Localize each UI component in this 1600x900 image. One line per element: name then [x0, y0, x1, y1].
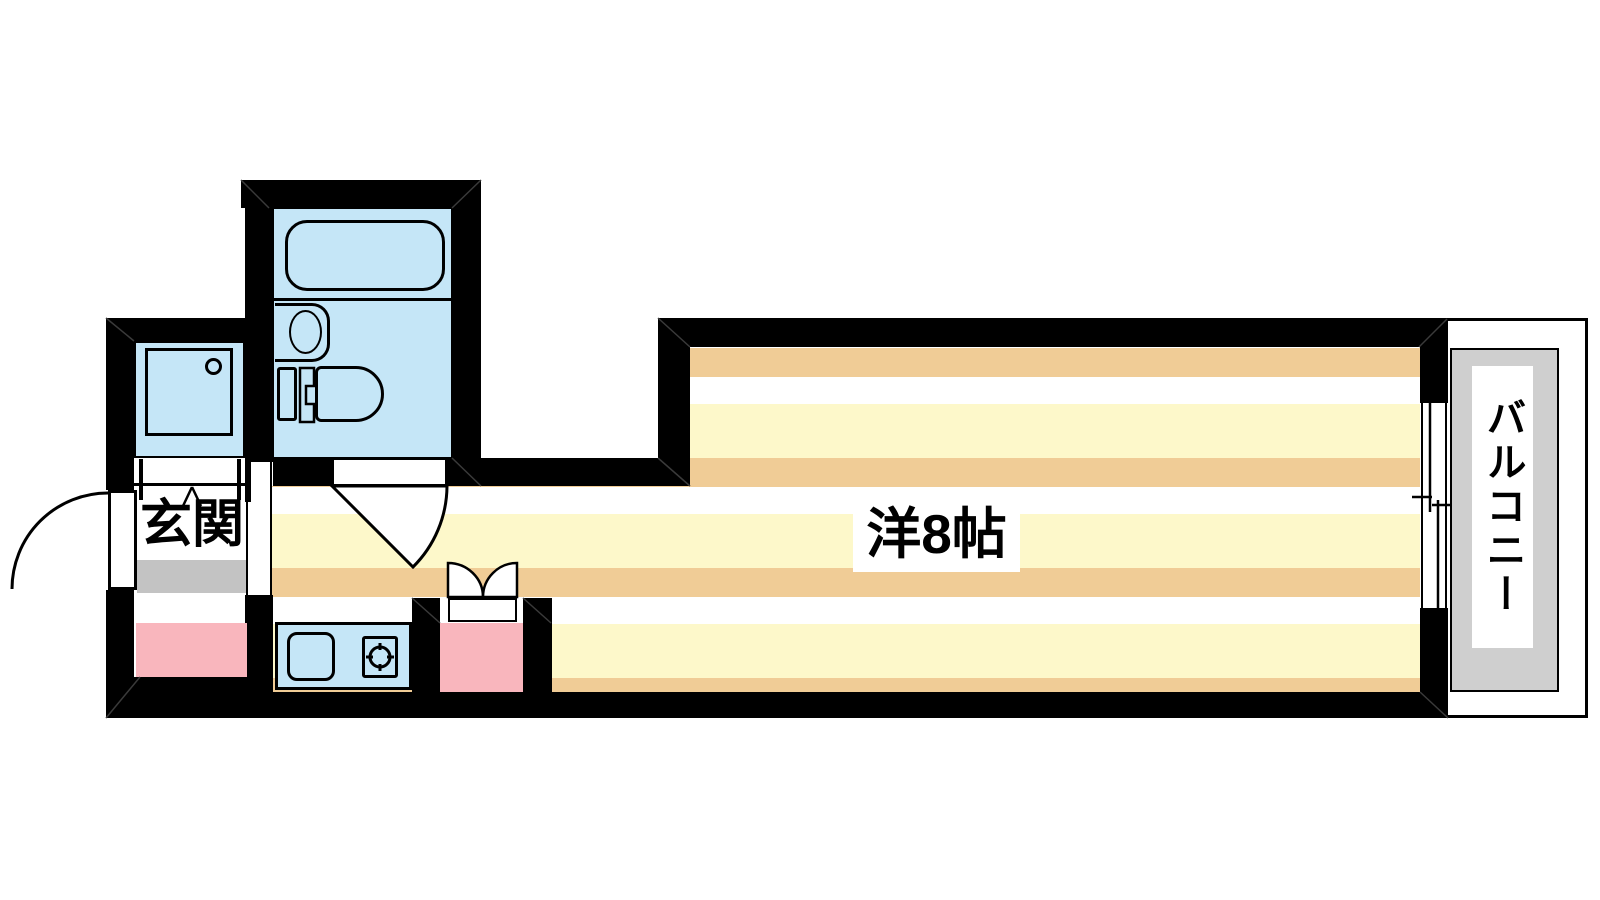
wall-bathroom-top [241, 180, 481, 208]
wall-right-upper [1420, 347, 1448, 403]
wall-closet-left [412, 598, 440, 692]
genkan-step [137, 560, 246, 593]
wall-bathroom-right [452, 208, 481, 458]
floor-plan: バルコニー 玄関 洋8帖 [0, 0, 1600, 900]
balcony-label: バルコニー [1472, 366, 1533, 648]
kitchen-sink-icon [287, 632, 335, 681]
entrance-door-leaf [108, 490, 137, 590]
wall-mainroom-left [658, 347, 690, 486]
utility-space-right [440, 623, 523, 692]
main-room-label: 洋8帖 [845, 496, 1028, 572]
stove-icon [362, 636, 398, 678]
wall-closet-right [523, 598, 552, 692]
wall-washroom-top [106, 318, 248, 341]
wall-bottom [106, 692, 1448, 718]
bathroom-partition-line [273, 298, 452, 301]
toilet-bowl-icon [315, 366, 384, 422]
toilet-tank-icon [277, 367, 297, 421]
bathroom-door-opening [332, 458, 447, 486]
drain-icon [205, 358, 222, 375]
wall-kitchen-divider [245, 595, 273, 692]
utility-space-left [136, 623, 247, 677]
wash-basin-bowl-icon [289, 310, 322, 354]
passage-frame-right [270, 462, 272, 595]
wall-bathroom-left [245, 208, 273, 462]
sliding-window [1421, 403, 1448, 608]
closet-threshold [448, 598, 517, 622]
wall-left-upper [106, 341, 134, 490]
entrance-door-swing-icon [12, 493, 108, 589]
bathtub-icon [285, 220, 445, 291]
entrance-label: 玄関 [134, 494, 250, 556]
washroom-doorway-sill [134, 483, 245, 486]
wall-mainroom-top [658, 318, 1448, 347]
